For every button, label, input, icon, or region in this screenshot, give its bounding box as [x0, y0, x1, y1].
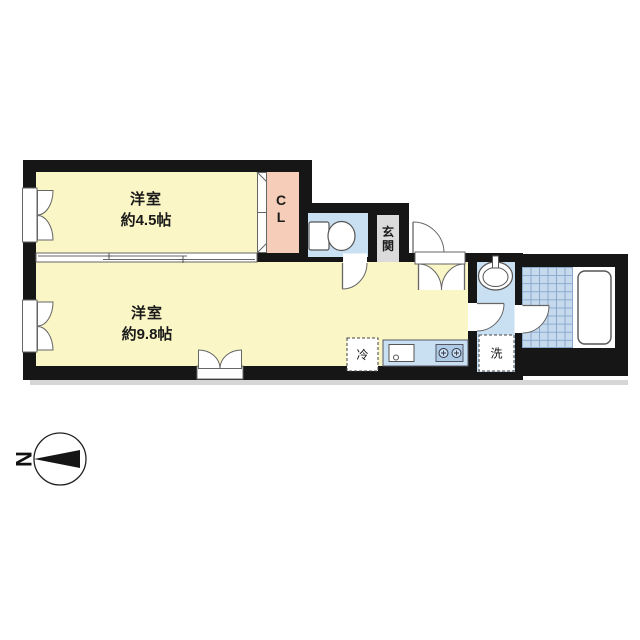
sink-drain	[394, 355, 399, 360]
washbasin-fixture	[479, 256, 513, 290]
upper-room-name: 洋室	[130, 190, 162, 208]
door-opening	[515, 305, 524, 333]
washroom-door	[468, 303, 504, 331]
entrance-door	[413, 222, 465, 290]
window-upper-room	[23, 188, 54, 242]
window-main-room-left	[23, 300, 54, 352]
window-leaf-bottom	[38, 216, 54, 241]
closet-door-notch-bottom	[258, 244, 267, 253]
washer-label: 洗	[490, 347, 502, 361]
window-frame	[23, 188, 38, 242]
bathtub	[578, 271, 611, 344]
toilet-tank	[309, 222, 329, 250]
window-main-room-bottom	[197, 350, 243, 379]
window-leaf-left	[199, 350, 221, 369]
window-leaf-top	[38, 191, 54, 216]
toilet-fixture	[309, 222, 355, 251]
compass: N	[12, 433, 87, 485]
closet-door	[258, 172, 267, 253]
window-leaf-right	[220, 350, 242, 369]
kitchen-counter	[383, 340, 468, 366]
refrigerator-label: 冷	[356, 348, 368, 362]
main-room-size: 約9.8帖	[122, 325, 173, 343]
window-leaf-bottom	[38, 327, 54, 351]
door-swing-area	[413, 222, 444, 253]
door-opening	[343, 254, 367, 264]
toilet-bowl	[328, 222, 355, 251]
sliding-partition	[36, 253, 257, 264]
door-opening	[468, 303, 477, 331]
closet-label-c: C	[276, 192, 286, 208]
closet-door-notch-top	[258, 173, 267, 182]
floor-plan-canvas: 冷 洗 洋室 約4.5帖 洋室 約9.8帖 C L 玄 関 N	[0, 0, 640, 640]
sliding-partition-track	[36, 253, 257, 262]
entrance-label-2: 関	[382, 239, 394, 253]
entrance-label-1: 玄	[382, 224, 394, 239]
washer-space: 洗	[479, 335, 514, 371]
window-frame	[23, 300, 38, 352]
toilet-door	[343, 254, 368, 290]
closet-label-l: L	[277, 209, 286, 225]
kitchen-sink	[389, 345, 414, 362]
refrigerator-space: 冷	[347, 338, 378, 371]
window-leaf-top	[38, 302, 54, 326]
entrance-threshold	[415, 252, 465, 264]
main-room-name: 洋室	[131, 304, 163, 322]
north-label: N	[12, 451, 37, 467]
upper-room-size: 約4.5帖	[121, 211, 172, 229]
bathroom-door	[515, 305, 550, 333]
floor-plan-fixture-layer: 冷 洗 洋室 約4.5帖 洋室 約9.8帖 C L 玄 関 N	[0, 0, 640, 640]
faucet	[493, 256, 499, 268]
